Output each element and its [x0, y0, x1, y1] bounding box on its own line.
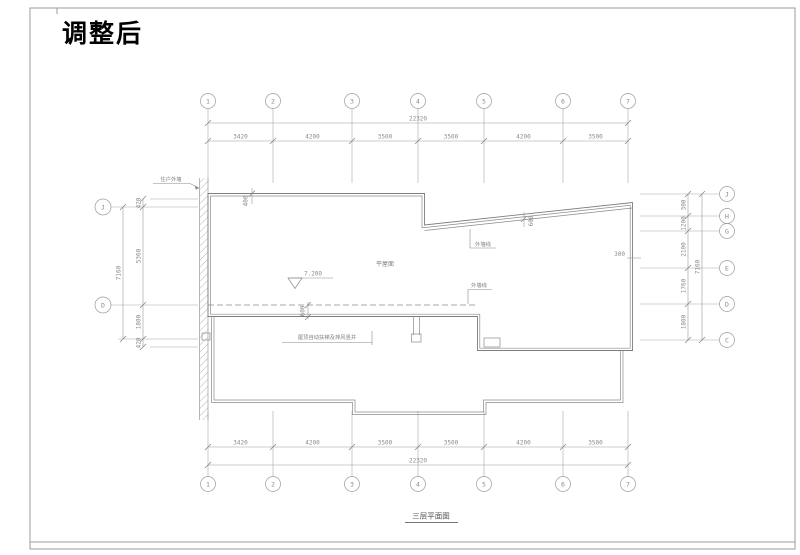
roof-detail-box	[484, 338, 500, 347]
page-title: 调整后	[62, 19, 143, 48]
roof-surface-label: 平屋面	[376, 261, 394, 268]
grid-bubble-label: 2	[271, 97, 275, 105]
grid-bottom: 3420 4200 3500 3500 4200 3500 22320 1 2 …	[201, 411, 636, 492]
dim-segment: 300	[681, 199, 688, 210]
dim-segment: 3500	[378, 440, 393, 447]
dim-overall-top: 22320	[409, 116, 427, 123]
dim-segment: 4200	[305, 440, 320, 447]
dim-segment: 1800	[681, 314, 688, 329]
plan-drawing: 7.200 平屋面 外墙线 外墙线 屋顶自动扶梯及排风竖井 400	[200, 178, 642, 420]
caption-text: 三层平面图	[412, 512, 450, 521]
plan-dim-400: 400	[243, 188, 256, 206]
dim-segment: 3500	[588, 134, 603, 141]
grid-bubble-label: 1	[206, 97, 210, 105]
floor-plan-canvas: 调整后 1 2 3 4 5 6 7 22320 3420	[0, 0, 800, 555]
grid-bubble-label: G	[725, 227, 729, 235]
grid-bubble-label: 4	[416, 97, 420, 105]
grid-bubble-label: J	[725, 190, 729, 198]
plan-dim-300: 300	[614, 251, 641, 258]
svg-text:400: 400	[243, 195, 250, 206]
dim-segment: 3500	[588, 440, 603, 447]
dim-segment: 3500	[378, 134, 393, 141]
wall-line-callout-2: 外墙线	[468, 281, 492, 304]
wall-line-label: 外墙线	[475, 240, 492, 248]
svg-text:600: 600	[528, 215, 535, 226]
dim-segment: 3420	[233, 440, 248, 447]
dim-segment: 4200	[516, 134, 531, 141]
grid-bubble-label: 7	[626, 480, 630, 488]
dim-segment: 3420	[233, 134, 248, 141]
upper-roof-outline	[208, 194, 633, 351]
grid-bubble-label: J	[101, 203, 105, 211]
wall-callout-label: 住户外墙	[160, 175, 182, 183]
dim-segment: 3500	[444, 440, 459, 447]
grid-bubble-label: 5	[482, 480, 486, 488]
elevation-value: 7.200	[304, 271, 322, 278]
hatched-wall	[200, 178, 209, 420]
upper-roof-inner-line	[211, 196, 631, 348]
sheet-border	[30, 8, 795, 549]
dim-segment: 420	[136, 197, 143, 208]
dim-segment: 2100	[681, 242, 688, 257]
grid-bubble-label: 3	[350, 97, 354, 105]
dim-overall-bottom: 22320	[409, 458, 427, 465]
dim-overall-left: 7160	[116, 265, 123, 280]
dim-overall-right: 7160	[695, 259, 702, 274]
grid-bubble-label: 6	[561, 480, 565, 488]
drawing-caption: 三层平面图	[405, 512, 458, 523]
grid-bubble-label: 5	[482, 97, 486, 105]
dim-segment: 1200	[681, 216, 688, 231]
wall-line-label: 外墙线	[471, 281, 488, 289]
shaft-note-callout: 屋顶自动扶梯及排风竖井	[282, 331, 372, 345]
grid-bubble-label: 3	[350, 480, 354, 488]
elevation-marker: 7.200	[288, 271, 333, 289]
lower-roof-inner-line	[214, 317, 621, 413]
grid-right: 300 1200 2100 1760 1800 7160 J H G E D C	[640, 187, 735, 348]
grid-bubble-label: H	[725, 212, 729, 220]
svg-text:600: 600	[300, 305, 307, 316]
svg-text:300: 300	[614, 251, 625, 258]
grid-bubble-label: 6	[561, 97, 565, 105]
grid-bubble-label: 2	[271, 480, 275, 488]
dim-segment: 4200	[305, 134, 320, 141]
shaft-note-label: 屋顶自动扶梯及排风竖井	[298, 333, 356, 341]
grid-top: 1 2 3 4 5 6 7 22320 3420 4200 3500 3500 …	[201, 94, 636, 184]
leader-arrow	[195, 186, 200, 190]
grid-bubble-label: C	[725, 336, 729, 344]
grid-bubble-label: 7	[626, 97, 630, 105]
dim-segment: 1760	[681, 278, 688, 293]
wall-line-callout-1: 外墙线	[470, 229, 496, 248]
grid-bubble-label: 4	[416, 480, 420, 488]
dim-segment: 420	[136, 337, 143, 348]
dim-segment: 1800	[136, 314, 143, 329]
grid-bubble-label: 1	[206, 480, 210, 488]
grid-left: 420 5360 1800 420 7160 J D 住户外墙	[95, 175, 199, 350]
dim-segment: 4200	[516, 440, 531, 447]
dim-segment: 5360	[136, 248, 143, 263]
dim-segment: 3500	[444, 134, 459, 141]
grid-bubble-label: D	[725, 300, 729, 308]
exhaust-shaft	[412, 317, 422, 343]
grid-bubble-label: E	[725, 264, 729, 272]
grid-bubble-label: D	[101, 301, 105, 309]
